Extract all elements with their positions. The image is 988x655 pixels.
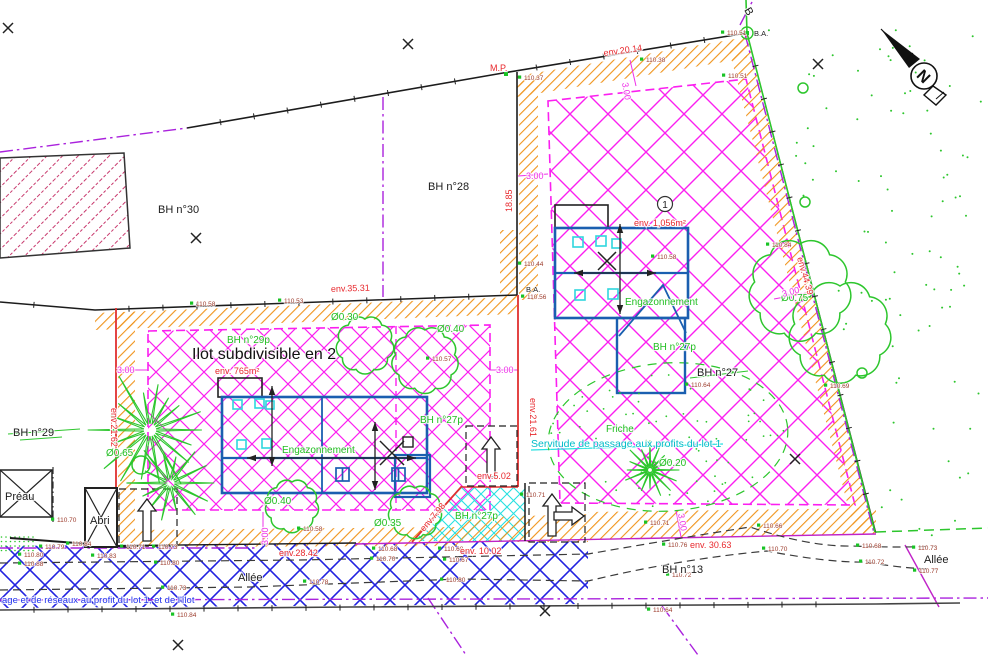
tick-mark: [354, 96, 355, 102]
speckle-dot: [888, 55, 890, 57]
speckle-dot: [889, 298, 891, 300]
tick-mark: [253, 113, 254, 119]
survey-point-marker: [722, 74, 725, 77]
survey-point-marker: [66, 542, 69, 545]
speckle-dot: [955, 197, 957, 199]
point-elevation-label: 110.58: [657, 254, 677, 261]
survey-point-marker: [647, 608, 650, 611]
speckle-dot: [651, 375, 653, 377]
survey-point-marker: [161, 586, 164, 589]
speckle-dot: [586, 410, 588, 412]
servitude-label: Servitude de passage aux profits du lot …: [531, 438, 721, 450]
north-arrow: N: [881, 29, 946, 105]
survey-point-marker: [370, 557, 373, 560]
speckle-dot: [707, 500, 709, 502]
speckle-dot: [954, 381, 956, 383]
speckle-dot: [972, 35, 974, 37]
speckle-dot: [714, 490, 716, 492]
speckle-dot: [930, 133, 932, 135]
survey-point-marker: [721, 31, 724, 34]
speckle-dot: [665, 415, 667, 417]
vegetation-label: BH n°29p: [227, 335, 270, 346]
point-elevation-label: 110.56: [527, 294, 547, 301]
speckle-dot: [895, 382, 897, 384]
survey-point-marker: [372, 547, 375, 550]
point-elevation-label: 110.58: [196, 301, 216, 308]
speckle-dot: [581, 396, 583, 398]
point-elevation-label: 110.80: [446, 577, 466, 584]
point-elevation-label: 110.79: [45, 544, 65, 551]
dimension-label: env.20.14: [603, 43, 643, 58]
survey-point-marker: [39, 545, 42, 548]
speckle-dot: [706, 421, 708, 423]
speckle-dot: [943, 177, 945, 179]
survey-point-marker: [518, 262, 521, 265]
speckle-dot: [892, 345, 894, 347]
point-elevation-label: 110.77: [919, 568, 939, 575]
point-elevation-label: 110.78: [309, 579, 329, 586]
parcel-label: BH n°30: [158, 204, 199, 216]
speckle-dot: [893, 422, 895, 424]
speckle-dot: [603, 408, 605, 410]
point-elevation-label: 110.69: [830, 383, 850, 390]
point-elevation-label: 110.88: [24, 561, 44, 568]
ba-label: B.A.: [526, 285, 540, 294]
ba-label: B.A.: [754, 29, 768, 38]
speckle-dot: [967, 472, 969, 474]
speckle-dot: [892, 47, 894, 49]
point-elevation-label: 110.71: [126, 544, 146, 551]
dimension-label: env. 10.02: [460, 546, 501, 556]
dimension-label: env. 30.63: [690, 540, 731, 550]
speckle-dot: [832, 54, 834, 56]
survey-point-marker: [518, 76, 521, 79]
vegetation-label: BH n°27p: [455, 511, 498, 522]
tick-mark: [704, 37, 705, 43]
needle-fill: [881, 29, 920, 68]
speckle-dot: [763, 435, 765, 437]
vegetation-label: Engazonnement: [625, 297, 698, 308]
vegetation-label: Ø0.30: [331, 312, 359, 323]
speckle-dot: [891, 210, 893, 212]
survey-point-marker: [913, 569, 916, 572]
speckle-dot: [958, 273, 960, 275]
survey-point-marker: [171, 613, 174, 616]
speckle-dot: [904, 92, 906, 94]
tick-mark: [570, 59, 571, 65]
vegetation-label: Ø0.35: [374, 518, 402, 529]
speckle-dot: [705, 460, 707, 462]
shrub-circle: [798, 83, 808, 93]
speckle-dot: [924, 59, 926, 61]
speckle-dot: [647, 456, 649, 458]
speckle-dot: [807, 127, 809, 129]
speckle-dot: [696, 480, 698, 482]
speckle-dot: [813, 75, 815, 77]
speckle-dot: [552, 423, 554, 425]
tick-mark: [34, 302, 35, 308]
speckle-dot: [550, 432, 552, 434]
speckle-dot: [871, 94, 873, 96]
tick-mark: [387, 90, 388, 96]
speckle-dot: [641, 471, 643, 473]
parcel-label: Allée: [924, 554, 948, 566]
speckle-dot: [909, 45, 911, 47]
point-elevation-label: 110.70: [376, 556, 396, 563]
speckle-dot: [949, 85, 951, 87]
speckle-dot: [777, 435, 779, 437]
speckle-dot: [871, 300, 873, 302]
speckle-dot: [843, 328, 845, 330]
limit-top-left: [0, 128, 187, 152]
speckle-dot: [942, 200, 944, 202]
parcel-label: Préau: [5, 491, 34, 503]
point-elevation-label: 110.57: [432, 356, 452, 363]
point-elevation-label: 110.71: [650, 520, 670, 527]
speckle-dot: [808, 73, 810, 75]
speckle-dot: [638, 401, 640, 403]
servitude-reseaux-label: age et de réseaux au profit du lot 1, et…: [2, 595, 195, 606]
dimension-label: env.21.62: [109, 408, 119, 447]
speckle-dot: [638, 487, 640, 489]
speckle-dot: [763, 399, 765, 401]
speckle-dot: [724, 482, 726, 484]
speckle-dot: [980, 101, 982, 103]
speckle-dot: [796, 142, 798, 144]
speckle-dot: [881, 506, 883, 508]
parcel-label: B: [741, 6, 755, 18]
speckle-dot: [655, 421, 657, 423]
dimension-label: env.28.42: [279, 548, 318, 558]
survey-point-marker: [521, 295, 524, 298]
speckle-dot: [825, 107, 827, 109]
speckle-dot: [864, 231, 866, 233]
point-elevation-label: 110.80: [160, 560, 180, 567]
speckle-dot: [768, 29, 770, 31]
vegetation-label: Ø0.20: [659, 458, 687, 469]
dimension-label: env. 765m²: [215, 366, 259, 376]
survey-point-marker: [651, 255, 654, 258]
shrub-circle: [800, 197, 810, 207]
speckle-dot: [573, 405, 575, 407]
point-elevation-label: 110.73: [158, 544, 178, 551]
point-elevation-label: 110.44: [524, 261, 544, 268]
speckle-dot: [929, 325, 931, 327]
point-elevation-label: 110.58: [303, 526, 323, 533]
tick-mark: [536, 65, 537, 71]
dimension-label: env.21.61: [528, 398, 538, 437]
green-dash-east: [876, 528, 988, 532]
point-elevation-label: 110.73: [167, 585, 187, 592]
speckle-dot: [909, 90, 911, 92]
speckle-dot: [813, 145, 815, 147]
offset-dimension-label: 3.00: [117, 365, 135, 375]
survey-point-marker: [426, 357, 429, 360]
speckle-dot: [890, 110, 892, 112]
point-elevation-label: 110.80: [24, 552, 44, 559]
speckle-dot: [615, 489, 617, 491]
offset-dimension-label: 3.00: [260, 527, 270, 545]
survey-point-marker: [154, 561, 157, 564]
speckle-dot: [978, 393, 980, 395]
speckle-dot: [963, 285, 965, 287]
survey-point-marker: [859, 560, 862, 563]
survey-point-marker: [190, 302, 193, 305]
speckle-dot: [759, 421, 761, 423]
speckle-dot: [669, 494, 671, 496]
dimension-label: 18.85: [504, 189, 514, 212]
speckle-dot: [686, 492, 688, 494]
speckle-dot: [941, 307, 943, 309]
speckle-dot: [885, 242, 887, 244]
point-elevation-label: 110.84: [772, 242, 792, 249]
speckle-dot: [901, 499, 903, 501]
survey-point-marker: [662, 543, 665, 546]
point-elevation-label: 110.37: [524, 75, 544, 82]
survey-point-marker: [303, 580, 306, 583]
cyan-labels: Servitude de passage aux profits du lot …: [531, 438, 721, 450]
speckle-dot: [609, 390, 611, 392]
site-plan-drawing: N 110.37110.38110.51110.51110.44110.5611…: [0, 0, 988, 655]
speckle-dot: [895, 29, 897, 31]
offset-dimension-label: 3.00: [496, 365, 514, 375]
speckle-dot: [835, 170, 837, 172]
speckle-dot: [925, 284, 927, 286]
speckle-dot: [867, 231, 869, 233]
point-elevation-label: 110.64: [653, 607, 673, 614]
speckle-dot: [619, 392, 621, 394]
speckle-dot: [899, 314, 901, 316]
speckle-dot: [918, 330, 920, 332]
survey-point-marker: [856, 544, 859, 547]
speckle-dot: [959, 195, 961, 197]
survey-point-marker: [438, 547, 441, 550]
speckle-dot: [812, 179, 814, 181]
speckle-dot: [654, 461, 656, 463]
vegetation-label: BH n°27p: [420, 415, 463, 426]
speckle-dot: [965, 215, 967, 217]
speckle-dot: [894, 271, 896, 273]
lot-number-bubble: 1: [658, 197, 673, 212]
speckle-dot: [949, 306, 951, 308]
survey-point-marker: [685, 383, 688, 386]
survey-point-marker: [762, 547, 765, 550]
speckle-dot: [959, 477, 961, 479]
speckle-dot: [918, 528, 920, 530]
point-elevation-label: 110.51: [728, 73, 748, 80]
point-elevation-label: 110.38: [646, 57, 666, 64]
speckle-dot: [612, 396, 614, 398]
point-elevation-label: 110.76: [668, 542, 688, 549]
point-elevation-label: 110.67: [449, 557, 469, 564]
speckle-dot: [946, 174, 948, 176]
survey-point-marker: [120, 545, 123, 548]
speckle-dot: [752, 476, 754, 478]
survey-point-marker: [757, 524, 760, 527]
speckle-dot: [948, 460, 950, 462]
speckle-dot: [856, 118, 858, 120]
dimension-label: env. 1,056m²: [634, 218, 686, 228]
point-elevation-label: 110.66: [763, 523, 783, 530]
speckle-dot: [714, 475, 716, 477]
speckle-dot: [748, 388, 750, 390]
vegetation-label: Engazonnement: [282, 445, 355, 456]
speckle-dot: [861, 292, 863, 294]
point-elevation-label: 110.70: [57, 517, 77, 524]
speckle-dot: [559, 432, 561, 434]
tick-mark: [421, 84, 422, 90]
vegetation-label: Friche: [606, 424, 634, 435]
speckle-dot: [954, 520, 956, 522]
hatch-band-mp-line-left: [500, 230, 517, 300]
speckle-dot: [931, 534, 933, 536]
speckle-dot: [648, 422, 650, 424]
speckle-dot: [962, 155, 964, 157]
parcel-label: BH n°13: [662, 564, 703, 576]
survey-point-marker: [644, 521, 647, 524]
speckle-dot: [929, 250, 931, 252]
offset-dimension-label: 3.00: [526, 171, 544, 181]
speckle-dot: [804, 162, 806, 164]
speckle-dot: [638, 393, 640, 395]
survey-point-marker: [766, 243, 769, 246]
speckle-dot: [967, 156, 969, 158]
survey-point-marker: [640, 58, 643, 61]
parcel-label: BH n°29: [13, 427, 54, 439]
point-elevation-label: 110.71: [526, 492, 546, 499]
speckle-dot: [579, 426, 581, 428]
speckle-dot: [698, 450, 700, 452]
survey-point-marker: [912, 546, 915, 549]
speckle-dot: [683, 413, 685, 415]
point-elevation-label: 110.72: [865, 559, 885, 566]
parcel-label: BH n°28: [428, 181, 469, 193]
speckle-dot: [858, 180, 860, 182]
survey-point-marker: [440, 578, 443, 581]
speckle-dot: [933, 288, 935, 290]
speckle-dot: [770, 435, 772, 437]
speckle-dot: [885, 299, 887, 301]
point-elevation-label: 110.84: [72, 541, 92, 548]
speckle-dot: [845, 323, 847, 325]
point-elevation-label: 110.53: [284, 298, 304, 305]
parcel-label: Allée: [238, 572, 262, 584]
speckle-dot: [783, 430, 785, 432]
parcel-label: Abri: [90, 515, 110, 527]
speckle-dot: [898, 377, 900, 379]
survey-point-marker: [443, 558, 446, 561]
speckle-dot: [652, 505, 654, 507]
speckle-dot: [880, 175, 882, 177]
speckle-dot: [926, 110, 928, 112]
survey-point-marker: [520, 493, 523, 496]
speckle-dot: [838, 290, 840, 292]
point-elevation-label: 110.83: [97, 553, 117, 560]
speckle-dot: [803, 195, 805, 197]
speckle-dot: [697, 420, 699, 422]
speckle-dot: [748, 415, 750, 417]
dimension-label: env.5.02: [477, 471, 511, 481]
speckle-dot: [931, 215, 933, 217]
speckle-dot: [887, 189, 889, 191]
point-elevation-label: 110.73: [918, 545, 938, 552]
speckle-dot: [957, 266, 959, 268]
speckle-dot: [716, 459, 718, 461]
vegetation-label: Ø0.40: [264, 496, 292, 507]
survey-point-marker: [18, 553, 21, 556]
vegetation-label: BH n°27p: [653, 342, 696, 353]
speckle-dot: [933, 428, 935, 430]
speckle-dot: [727, 462, 729, 464]
hatch-band-ilot-left: [118, 312, 135, 543]
speckle-dot: [889, 489, 891, 491]
blue-labels: age et de réseaux au profit du lot 1, et…: [2, 595, 195, 606]
tick-mark: [454, 78, 455, 84]
parcel-label: BH n°27: [697, 367, 738, 379]
cadastral-site-plan: N 110.37110.38110.51110.51110.44110.5611…: [0, 0, 988, 655]
tick-mark: [220, 119, 221, 125]
survey-point-marker: [51, 518, 54, 521]
ilot-title: Ilot subdivisible en 2: [192, 346, 336, 363]
tick-mark: [287, 108, 288, 114]
lot-number: 1: [662, 200, 668, 211]
point-elevation-label: 110.51: [727, 30, 747, 37]
speckle-dot: [605, 481, 607, 483]
speckle-dot: [625, 414, 627, 416]
speckle-dot: [632, 413, 634, 415]
speckle-dot: [857, 70, 859, 72]
point-elevation-label: 110.84: [177, 612, 197, 619]
speckle-dot: [879, 48, 881, 50]
speckle-dot: [795, 155, 797, 157]
speckle-dot: [722, 483, 724, 485]
speckle-dot: [911, 253, 913, 255]
survey-point-marker: [278, 299, 281, 302]
building-bh30: [0, 153, 130, 258]
dimension-label: env.35.31: [331, 283, 370, 294]
speckle-dot: [902, 112, 904, 114]
survey-point-marker: [297, 527, 300, 530]
survey-point-marker: [824, 384, 827, 387]
survey-point-marker: [152, 545, 155, 548]
speckle-dot: [940, 256, 942, 258]
speckle-dot: [745, 439, 747, 441]
speckle-dot: [915, 72, 917, 74]
speckle-dot: [969, 428, 971, 430]
vegetation-label: Ø0.65: [106, 448, 134, 459]
survey-point-marker: [91, 554, 94, 557]
dimension-label: M.P.: [490, 63, 507, 73]
point-elevation-label: 110.68: [862, 543, 882, 550]
point-elevation-label: 110.70: [768, 546, 788, 553]
speckle-dot: [950, 289, 952, 291]
speckle-dot: [754, 413, 756, 415]
speckle-dot: [940, 150, 942, 152]
hedge-speckle: [0, 534, 34, 553]
survey-point-marker: [18, 562, 21, 565]
tick-mark: [670, 43, 671, 49]
speckle-dot: [748, 421, 750, 423]
speckle-dot: [668, 374, 670, 376]
point-elevation-label: 110.68: [378, 546, 398, 553]
tick-mark: [320, 102, 321, 108]
vegetation-label: Ø0.40: [437, 324, 465, 335]
speckle-dot: [890, 59, 892, 61]
point-elevation-label: 110.64: [691, 382, 711, 389]
